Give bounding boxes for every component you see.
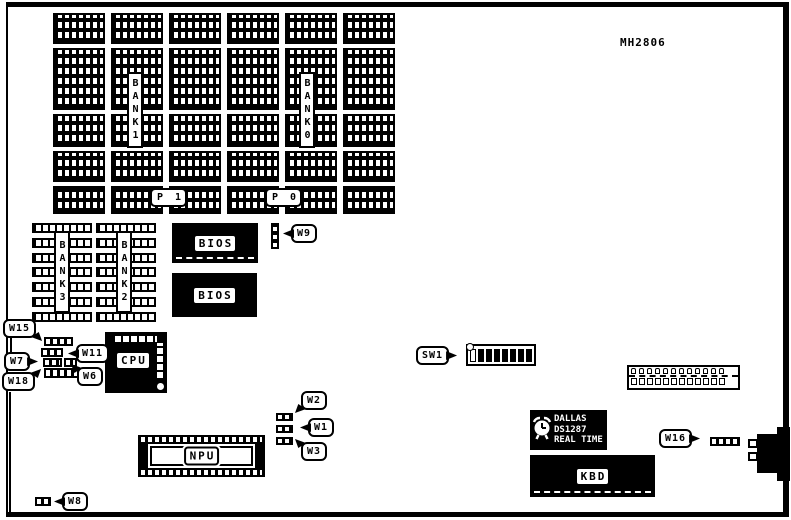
cpu-pin-strip-top <box>113 336 157 342</box>
connector-hole-icon <box>719 378 725 385</box>
bank2-label: BANK2 <box>116 231 132 313</box>
bios1-label: BIOS <box>193 234 238 253</box>
bank3-label: BANK3 <box>54 231 70 313</box>
jumper-w7 <box>43 358 62 367</box>
rtc-brand: DALLAS <box>554 414 603 425</box>
motherboard-diagram: BANK1 BANK0 P 1 P 0 BANK3 BANK2 BIOS BIO… <box>0 0 791 520</box>
switch-position <box>486 349 492 362</box>
bios2-label: BIOS <box>192 286 237 305</box>
npu-pin-row-top <box>141 437 262 442</box>
parity0-label: P 0 <box>265 188 302 207</box>
jumper-w2 <box>276 413 293 421</box>
switch-position <box>478 349 484 362</box>
memory-chip <box>169 13 221 44</box>
connector-hole-icon <box>695 378 701 385</box>
jumper-w6-label: W6 <box>77 367 103 386</box>
memory-chip <box>169 114 221 147</box>
sip-memory-strip <box>32 312 92 322</box>
connector-hole-icon <box>671 378 677 385</box>
memory-chip <box>285 13 337 44</box>
kbd-socket-line <box>534 491 651 493</box>
memory-chip <box>111 13 163 44</box>
keyboard-connector-pin <box>748 439 758 448</box>
memory-chip <box>227 48 279 110</box>
memory-chip <box>285 151 337 182</box>
cpu-pin-strip-right <box>157 343 163 380</box>
memory-chip <box>53 48 105 110</box>
jumper-w3-label: W3 <box>301 442 327 461</box>
sip-memory-strip <box>96 312 156 322</box>
connector-hole-icon <box>679 378 685 385</box>
connector-pin-icon <box>647 368 652 374</box>
bank0-label: BANK0 <box>299 72 315 148</box>
kbd-label: KBD <box>575 467 611 486</box>
connector-pin-icon <box>703 368 708 374</box>
cpu-pin1-dot-icon <box>157 383 164 390</box>
jumper-w9 <box>271 223 279 249</box>
switch-position <box>518 349 524 362</box>
connector-pin-icon <box>631 368 636 374</box>
connector-hole-icon <box>663 378 669 385</box>
connector-hole-icon <box>655 378 661 385</box>
rtc-module: DALLAS DS1287 REAL TIME <box>530 410 607 450</box>
parity1-label: P 1 <box>150 188 187 207</box>
rtc-type: REAL TIME <box>554 435 603 446</box>
jumper-w18-label: W18 <box>2 372 35 391</box>
switch-position <box>502 349 508 362</box>
memory-chip <box>169 48 221 110</box>
dip-switch-sw1-label: SW1 <box>416 346 449 365</box>
connector-pin-icon <box>695 368 700 374</box>
keyboard-connector-bracket <box>777 427 790 481</box>
switch-position <box>526 349 532 362</box>
dip-switch-sw1 <box>466 344 536 366</box>
memory-chip <box>169 151 221 182</box>
memory-chip <box>227 114 279 147</box>
npu-socket: NPU <box>138 435 265 477</box>
jumper-w15 <box>44 337 73 346</box>
memory-chip <box>53 186 105 214</box>
jumper-w3 <box>276 437 293 445</box>
connector-hole-icon <box>631 378 637 385</box>
slot-column-left <box>413 13 542 30</box>
connector-pin-icon <box>687 368 692 374</box>
w18-leader-line <box>9 392 11 512</box>
memory-chip <box>111 151 163 182</box>
connector-hole-icon <box>639 378 645 385</box>
connector-hole-icon <box>687 378 693 385</box>
npu-pin-row-bottom <box>141 470 262 475</box>
memory-chip <box>343 48 395 110</box>
jumper-w11-label: W11 <box>76 344 109 363</box>
jumper-w8 <box>35 497 51 506</box>
memory-chip <box>53 151 105 182</box>
bios-chip-2: BIOS <box>172 273 257 317</box>
memory-chip <box>227 151 279 182</box>
connector-hole-icon <box>647 378 653 385</box>
jumper-w1-label: W1 <box>308 418 334 437</box>
jumper-w16-label: W16 <box>659 429 692 448</box>
slot-column-right <box>552 13 753 31</box>
kbd-chip: KBD <box>530 455 655 497</box>
cpu-chip: CPU <box>105 332 167 393</box>
memory-chip-grid <box>53 13 395 214</box>
pin-row <box>629 367 738 377</box>
connector-pin-icon <box>655 368 660 374</box>
memory-chip <box>343 151 395 182</box>
connector-pin-icon <box>719 368 724 374</box>
npu-tab-left <box>138 444 148 468</box>
alarm-clock-icon <box>532 415 552 445</box>
bank1-label: BANK1 <box>127 72 143 148</box>
connector-pin-icon <box>679 368 684 374</box>
jumper-w9-label: W9 <box>291 224 317 243</box>
connector-hole-icon <box>703 378 709 385</box>
cpu-label: CPU <box>115 351 151 370</box>
jumper-w16 <box>710 437 740 446</box>
memory-chip <box>53 114 105 147</box>
jumper-w2-label: W2 <box>301 391 327 410</box>
switch-position <box>494 349 500 362</box>
connector-pin-icon <box>639 368 644 374</box>
bios1-socket-line <box>176 257 254 259</box>
keyboard-connector-pin <box>748 452 758 461</box>
bios-chip-1: BIOS <box>172 223 258 263</box>
jumper-w7-label: W7 <box>4 352 30 371</box>
switch-position <box>510 349 516 362</box>
jumper-w15-label: W15 <box>3 319 36 338</box>
connector-pin-icon <box>671 368 676 374</box>
connector-pin-icon <box>663 368 668 374</box>
pin-header-connector <box>627 365 740 390</box>
rtc-model: DS1287 <box>554 425 603 436</box>
jumper-w8-label: W8 <box>62 492 88 511</box>
npu-label: NPU <box>184 447 220 466</box>
board-part-number: MH2806 <box>620 36 666 49</box>
jumper-w11 <box>41 348 63 357</box>
jumper-w1 <box>276 425 293 433</box>
memory-chip <box>343 114 395 147</box>
npu-tab-right <box>255 444 265 468</box>
pin1-dot-icon <box>466 343 474 351</box>
connector-hole-icon <box>711 378 717 385</box>
socket-row <box>629 377 738 386</box>
memory-chip <box>343 186 395 214</box>
memory-chip <box>343 13 395 44</box>
memory-chip <box>53 13 105 44</box>
connector-pin-icon <box>711 368 716 374</box>
memory-chip <box>227 13 279 44</box>
